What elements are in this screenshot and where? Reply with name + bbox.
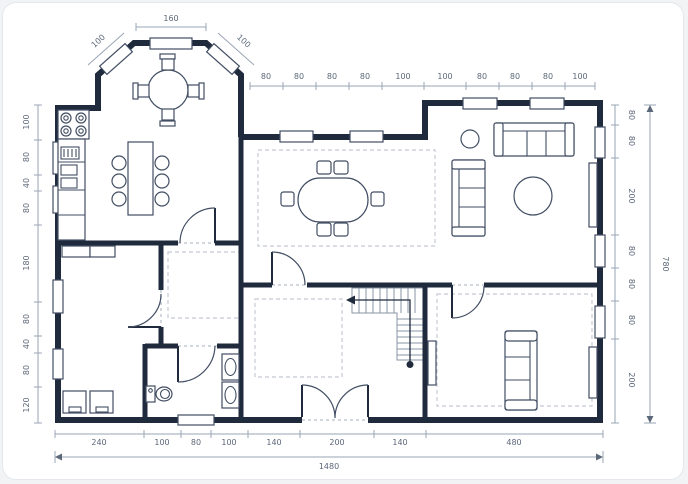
dim-bottom-7: 480 [506, 438, 521, 447]
kitchen-stool-1 [112, 156, 126, 170]
dim-line-top [250, 82, 595, 90]
bay-chair-left [138, 85, 149, 97]
dim-left-1: 80 [22, 152, 31, 162]
dim-bay-left: 100 [90, 33, 107, 50]
dim-line-left [34, 105, 42, 423]
dim-arrow-right-bottom [647, 416, 654, 423]
doors [128, 208, 484, 418]
burner-4 [76, 126, 86, 136]
bathroom-door-arc [178, 346, 215, 382]
hall-rug-outline [255, 299, 342, 377]
right-window-3 [595, 306, 605, 338]
dining-window-2 [350, 131, 383, 142]
dim-bottom-4: 140 [266, 438, 281, 447]
office-desk-2 [90, 246, 115, 257]
hall-door-arc [272, 252, 305, 285]
dining-chair-6 [371, 192, 384, 206]
dim-line-bay-top [136, 23, 206, 31]
office-chair-1 [63, 391, 86, 413]
dim-bottom-0: 240 [91, 438, 106, 447]
stair-direction-arrow [346, 296, 355, 305]
side-table [461, 130, 479, 148]
dim-top-0: 80 [261, 72, 271, 81]
bed [505, 331, 537, 410]
dim-left-4: 180 [22, 255, 31, 270]
office-door-arc [128, 294, 161, 327]
three-seat-sofa [494, 123, 574, 156]
staircase [346, 288, 423, 368]
kitchen-stool-6 [155, 192, 169, 206]
dim-bottom-1: 100 [154, 438, 169, 447]
dim-right-total: 780 [661, 256, 670, 271]
dim-left-6: 40 [22, 339, 31, 349]
stair-direction-dot [407, 361, 414, 368]
dim-arrow-bottom-left [55, 454, 62, 461]
dim-bottom-total: 1480 [319, 462, 339, 471]
left-window-4 [53, 349, 63, 379]
dim-bottom-2: 80 [191, 438, 201, 447]
dim-bottom-5: 200 [329, 438, 344, 447]
floor-plan-canvas: 160 100 100 80 80 80 80 100 100 80 80 80… [0, 0, 688, 484]
dim-bottom-3: 100 [221, 438, 236, 447]
right-window-1 [595, 127, 605, 158]
bay-chair-left-back [133, 83, 138, 99]
bay-chair-right-back [199, 83, 204, 99]
bay-top-window [150, 38, 192, 49]
kitchen-door-arc [180, 208, 215, 243]
dim-left-5: 80 [22, 314, 31, 324]
living-window-2 [530, 98, 564, 109]
bay-left-window [100, 44, 133, 75]
bay-round-table [148, 70, 188, 110]
bay-chair-right [188, 85, 199, 97]
dim-arrow-bottom-right [596, 454, 603, 461]
dim-left-8: 120 [22, 397, 31, 412]
dim-top-3: 80 [360, 72, 370, 81]
burner-1 [61, 113, 71, 123]
dim-right-2: 200 [627, 188, 636, 203]
bay-chair-bottom-back [160, 121, 175, 126]
door-openings [161, 243, 484, 420]
dim-top-2: 80 [327, 72, 337, 81]
kitchen-furniture [58, 110, 169, 240]
bedroom-furniture [428, 331, 597, 410]
kitchen-table [128, 142, 153, 215]
living-window-1 [463, 98, 497, 109]
dim-right-3: 80 [627, 246, 636, 256]
wardrobe [428, 341, 436, 385]
kitchen-stool-2 [112, 174, 126, 188]
bedroom-dresser [589, 347, 597, 398]
right-window-2 [595, 235, 605, 267]
dim-left-7: 80 [22, 365, 31, 375]
dim-left-3: 80 [22, 203, 31, 213]
office-furniture [62, 246, 115, 413]
dim-bottom-6: 140 [392, 438, 407, 447]
kitchen-stool-4 [155, 156, 169, 170]
bathroom-fixtures [146, 354, 239, 408]
dim-line-right-total [644, 105, 656, 423]
dining-furniture [281, 161, 384, 236]
dim-arrow-right-top [647, 105, 654, 112]
closet-rug-outline [168, 252, 240, 318]
living-furniture [452, 123, 597, 236]
two-seat-sofa [452, 160, 485, 236]
dim-top-5: 100 [437, 72, 452, 81]
dining-chair-1 [317, 161, 331, 174]
kitchen-stool-3 [112, 192, 126, 206]
bay-furniture [133, 54, 204, 126]
office-desk-1 [62, 246, 90, 257]
dining-chair-4 [334, 223, 348, 236]
dim-top-1: 80 [294, 72, 304, 81]
dim-bay-top: 160 [163, 14, 178, 23]
living-console [589, 163, 597, 227]
dining-chair-3 [317, 223, 331, 236]
dim-right-6: 200 [627, 372, 636, 387]
dim-right-1: 80 [627, 136, 636, 146]
dim-top-8: 80 [543, 72, 553, 81]
dim-left-0: 100 [22, 114, 31, 129]
dim-bay-right: 100 [235, 33, 252, 50]
coffee-table [514, 177, 552, 215]
bedroom-door-arc [452, 286, 484, 318]
bay-chair-top-back [160, 54, 175, 59]
kitchen-stool-5 [155, 174, 169, 188]
oval-dining-table [298, 178, 368, 222]
bay-chair-top [162, 59, 174, 70]
burner-2 [76, 113, 86, 123]
entry-door-arcs [302, 385, 368, 418]
dim-right-4: 80 [627, 279, 636, 289]
dining-chair-5 [281, 192, 294, 206]
dining-chair-2 [334, 161, 348, 174]
dim-right-5: 80 [627, 315, 636, 325]
dim-left-2: 40 [22, 178, 31, 188]
floor-plan-svg: 160 100 100 80 80 80 80 100 100 80 80 80… [0, 0, 688, 484]
bathroom-window [178, 415, 214, 425]
dim-line-bottom [55, 430, 603, 438]
bay-chair-bottom [162, 109, 174, 120]
office-chair-2 [90, 391, 113, 413]
dim-right-0: 80 [627, 110, 636, 120]
dining-window-1 [280, 131, 313, 142]
dim-line-right [611, 105, 619, 423]
dim-top-6: 80 [477, 72, 487, 81]
dim-top-4: 100 [395, 72, 410, 81]
left-window-3 [53, 280, 63, 313]
dim-top-9: 100 [572, 72, 587, 81]
dim-top-7: 80 [510, 72, 520, 81]
burner-3 [61, 126, 71, 136]
